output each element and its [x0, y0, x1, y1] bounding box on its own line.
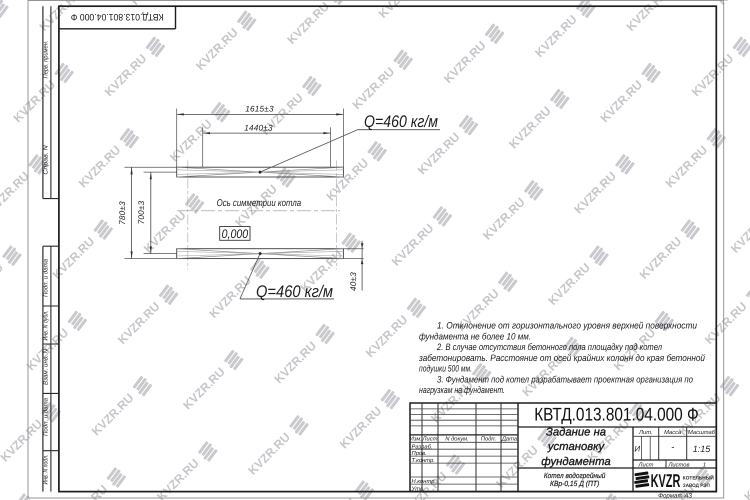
svg-text:КОТЕЛЬНЫЙ: КОТЕЛЬНЫЙ: [683, 475, 714, 482]
svg-text:1: 1: [703, 462, 706, 468]
svg-text:1. Отклонение от горизонтально: 1. Отклонение от горизонтального уровня …: [437, 321, 697, 331]
svg-text:фундамента не более 10 мм.: фундамента не более 10 мм.: [419, 331, 531, 341]
svg-text:KVZR: KVZR: [651, 470, 681, 491]
svg-text:нагрузкам на фундамент.: нагрузкам на фундамент.: [419, 385, 505, 395]
svg-text:40±3: 40±3: [349, 272, 358, 291]
svg-text:1:15: 1:15: [693, 444, 712, 454]
svg-text:Задание на: Задание на: [546, 426, 606, 438]
svg-text:Разраб.: Разраб.: [412, 443, 433, 450]
svg-text:забетонировать. Расстояние от: забетонировать. Расстояние от осей крайн…: [418, 353, 705, 363]
svg-text:700±3: 700±3: [137, 200, 146, 224]
svg-text:Пров.: Пров.: [412, 451, 427, 457]
svg-text:1440±3: 1440±3: [244, 123, 273, 132]
svg-text:Взам. инв. N: Взам. инв. N: [42, 349, 49, 385]
svg-text:Лит.: Лит.: [638, 430, 653, 436]
svg-text:Инв. N дубл.: Инв. N дубл.: [42, 311, 49, 341]
svg-text:Н.контр.: Н.контр.: [412, 479, 437, 485]
svg-text:0,000: 0,000: [222, 227, 249, 241]
svg-text:Инв. N подл.: Инв. N подл.: [42, 455, 49, 485]
svg-text:780±3: 780±3: [118, 201, 127, 225]
svg-text:Листов: Листов: [667, 462, 689, 468]
svg-text:2. В случае отсутствия бетонно: 2. В случае отсутствия бетонного пола пл…: [436, 342, 662, 352]
svg-text:Ось симметрии котла: Ось симметрии котла: [217, 198, 302, 209]
svg-text:Изм.: Изм.: [410, 437, 422, 443]
svg-text:Лист: Лист: [638, 462, 654, 468]
svg-text:фундамента: фундамента: [541, 456, 610, 468]
svg-text:N докум.: N докум.: [445, 436, 468, 443]
svg-text:3. Фундамент под котел разраба: 3. Фундамент под котел разрабатывает про…: [437, 374, 693, 384]
svg-text:-: -: [671, 442, 674, 452]
svg-text:Справ. N: Справ. N: [42, 145, 49, 175]
svg-text:Перв. примен.: Перв. примен.: [42, 41, 49, 79]
svg-text:Дата: Дата: [501, 437, 518, 443]
svg-text:Масштаб: Масштаб: [688, 429, 716, 436]
svg-text:КВТД.013.801.04.000 Ф: КВТД.013.801.04.000 Ф: [534, 403, 699, 424]
svg-text:Подп. и дата: Подп. и дата: [42, 259, 49, 297]
svg-text:подушки 500 мм.: подушки 500 мм.: [419, 364, 472, 374]
svg-text:И: И: [634, 445, 640, 454]
svg-text:1615±3: 1615±3: [245, 105, 274, 114]
svg-text:Масса: Масса: [664, 430, 682, 436]
svg-text:Лист: Лист: [422, 437, 438, 443]
svg-text:Q=460 кг/м: Q=460 кг/м: [256, 282, 333, 301]
svg-text:установку: установку: [547, 441, 606, 453]
svg-text:Утв.: Утв.: [411, 486, 425, 492]
svg-text:КВр-0,15 Д (ПТ): КВр-0,15 Д (ПТ): [550, 479, 600, 488]
svg-text:Подп.: Подп.: [481, 436, 496, 443]
svg-text:Т.контр.: Т.контр.: [412, 458, 435, 464]
svg-text:Формат А3: Формат А3: [658, 492, 692, 499]
svg-text:КВТД.013.801.04.000 Ф: КВТД.013.801.04.000 Ф: [71, 12, 164, 23]
svg-text:ЗАВОД РЭП: ЗАВОД РЭП: [683, 483, 710, 489]
svg-text:Q=460 кг/м: Q=460 кг/м: [364, 112, 438, 131]
svg-text:Подп. и дата: Подп. и дата: [42, 398, 49, 436]
